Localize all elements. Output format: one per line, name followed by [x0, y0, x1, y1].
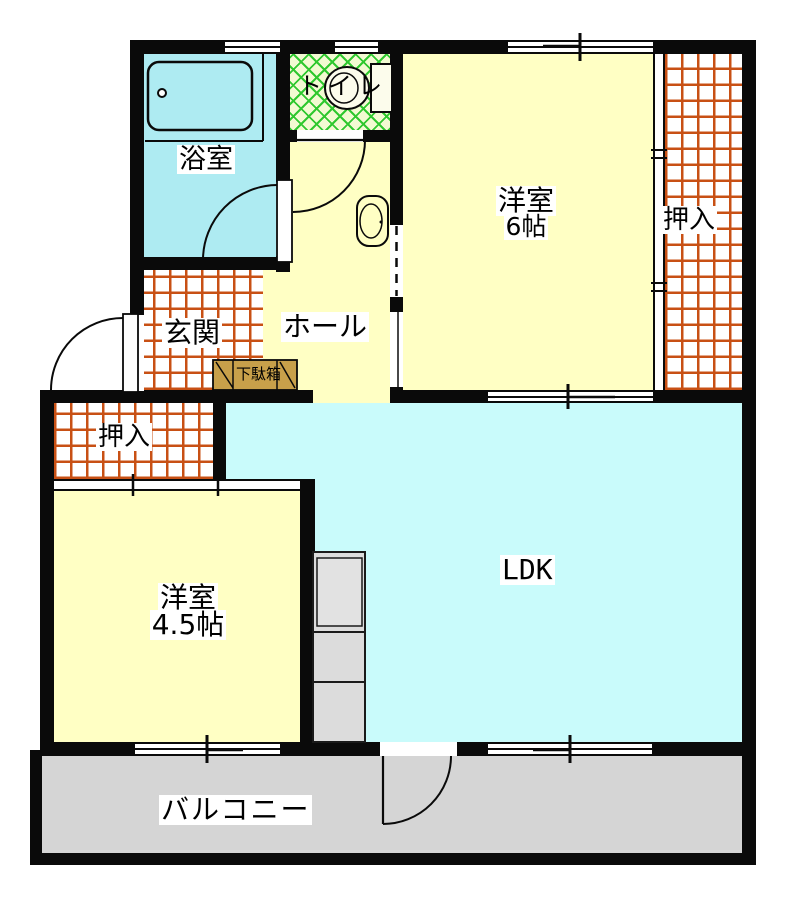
floor-plan: 浴室 トイレ 洋室 6帖 押入 玄関 ホール 下駄箱 押入 洋室 4.5帖 LD…	[0, 0, 789, 900]
shoe-cabinet-label: 下駄箱	[234, 366, 283, 382]
entrance-label: 玄関	[162, 318, 222, 348]
toilet-label: トイレ	[296, 74, 390, 100]
bathroom-door-icon	[203, 180, 292, 262]
closet-right-label: 押入	[661, 206, 717, 234]
washbasin-icon	[357, 196, 388, 246]
kitchen-counter-icon	[313, 552, 365, 742]
balcony-door-icon	[383, 756, 451, 824]
closet-left-label: 押入	[96, 423, 152, 451]
balcony-label: バルコニー	[159, 795, 312, 825]
bedroom45-label: 洋室 4.5帖	[128, 583, 248, 640]
window-ticks	[207, 33, 615, 763]
bedroom6-label: 洋室 6帖	[478, 186, 574, 240]
toilet-door-icon	[293, 140, 365, 212]
bathroom-label: 浴室	[177, 145, 235, 174]
ldk-label: LDK	[500, 555, 555, 585]
hall-label: ホール	[281, 312, 369, 342]
entrance-door-icon	[51, 314, 138, 392]
bathtub-icon	[145, 54, 263, 141]
